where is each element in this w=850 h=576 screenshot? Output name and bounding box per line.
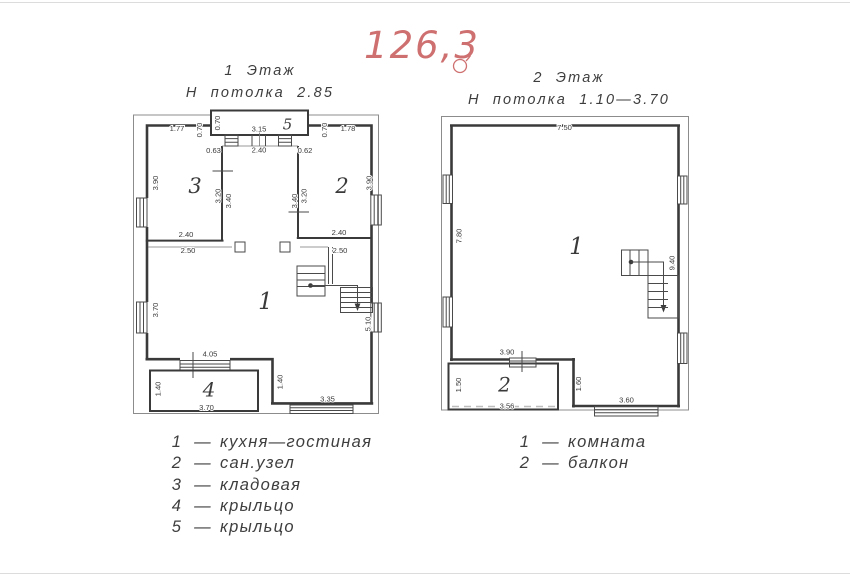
legend-num: 1 xyxy=(516,433,534,452)
room-label-porch: 4 xyxy=(202,378,216,402)
dim-label: 5.10 xyxy=(364,317,373,332)
dim-label: 7.50 xyxy=(557,123,572,132)
room-label-balcony: 2 xyxy=(497,373,511,397)
dim-label: 9.40 xyxy=(668,256,677,271)
legend-label: кухня—гостиная xyxy=(220,433,372,452)
floor1-entrance-steps xyxy=(180,361,230,371)
legend-dash: — xyxy=(534,454,568,473)
floorplan-page: 126,3 1 Этаж Н потолка 2.85 2 Этаж Н пот… xyxy=(0,0,850,576)
floor1-plan: 1.77 0.70 0.70 3.15 0.70 1.78 0.63 2.40 … xyxy=(134,111,382,414)
legend-label: крыльцо xyxy=(220,518,295,537)
floorplan-drawing: 1.77 0.70 0.70 3.15 0.70 1.78 0.63 2.40 … xyxy=(0,0,850,576)
dim-label: 2.40 xyxy=(332,228,347,237)
legend-label: кладовая xyxy=(220,476,301,495)
room-label-bath: 2 xyxy=(334,174,348,198)
floor2-walls xyxy=(450,124,680,407)
legend-item: 1 — комната xyxy=(516,433,646,454)
dim-label: 3.70 xyxy=(151,303,160,318)
dim-label: 0.62 xyxy=(298,146,313,155)
legend-num: 5 xyxy=(168,518,186,537)
floor2-plan: 7.50 7.80 9.40 3.90 1.50 3.56 1.60 3.60 … xyxy=(442,117,689,417)
dim-label: 3.70 xyxy=(199,403,214,412)
room-label-living: 1 xyxy=(258,289,273,315)
legend-item: 4 — крыльцо xyxy=(168,497,372,518)
dim-label: 3.90 xyxy=(151,176,160,191)
legend-num: 2 xyxy=(516,454,534,473)
legend-num: 1 xyxy=(168,433,186,452)
legend-dash: — xyxy=(186,518,220,537)
room-label-stoop5: 5 xyxy=(283,116,293,134)
legend-num: 4 xyxy=(168,497,186,516)
dim-label: 3.60 xyxy=(619,396,634,405)
dim-label: 1.50 xyxy=(454,378,463,393)
floor1-legend: 1 — кухня—гостиная 2 — сан.узел 3 — клад… xyxy=(168,433,372,539)
floor2-outer-boundary xyxy=(442,117,689,411)
legend-num: 3 xyxy=(168,476,186,495)
dim-label: 3.90 xyxy=(500,348,515,357)
legend-item: 2 — балкон xyxy=(516,454,646,475)
legend-num: 2 xyxy=(168,454,186,473)
dim-label: 3.35 xyxy=(320,395,335,404)
legend-item: 3 — кладовая xyxy=(168,476,372,497)
dim-label: 0.70 xyxy=(195,123,204,138)
dim-label: 1.40 xyxy=(154,382,163,397)
dim-label: 3.15 xyxy=(252,125,267,134)
dim-label: 0.70 xyxy=(213,116,222,131)
legend-item: 2 — сан.узел xyxy=(168,454,372,475)
legend-item: 5 — крыльцо xyxy=(168,518,372,539)
legend-label: комната xyxy=(568,433,646,452)
legend-dash: — xyxy=(186,476,220,495)
floor2-windows xyxy=(443,175,687,364)
floor1-columns xyxy=(235,242,290,252)
dim-label: 3.40 xyxy=(290,194,299,209)
dim-label: 3.90 xyxy=(365,176,374,191)
floor1-staircase xyxy=(297,247,373,313)
room-label-room: 1 xyxy=(569,234,584,260)
dim-label: 2.50 xyxy=(333,246,348,255)
floor1-exterior-steps xyxy=(290,405,353,414)
dim-label: 2.40 xyxy=(179,230,194,239)
room-label-storage: 3 xyxy=(188,174,201,198)
legend-item: 1 — кухня—гостиная xyxy=(168,433,372,454)
legend-label: сан.узел xyxy=(220,454,295,473)
legend-dash: — xyxy=(186,433,220,452)
legend-dash: — xyxy=(186,454,220,473)
dim-label: 3.20 xyxy=(300,189,309,204)
dim-label: 0.63 xyxy=(206,146,221,155)
dim-label: 1.40 xyxy=(276,375,285,390)
legend-dash: — xyxy=(186,497,220,516)
legend-label: балкон xyxy=(568,454,629,473)
floor2-exterior-steps xyxy=(595,407,659,417)
dim-label: 3.20 xyxy=(214,189,223,204)
legend-dash: — xyxy=(534,433,568,452)
flourish-mark xyxy=(454,56,471,73)
floor2-legend: 1 — комната 2 — балкон xyxy=(516,433,646,476)
dim-label: 3.40 xyxy=(224,194,233,209)
dim-label: 1.78 xyxy=(341,124,356,133)
dim-label: 0.70 xyxy=(320,123,329,138)
dim-label: 1.60 xyxy=(574,377,583,392)
floor1-outer-boundary xyxy=(134,115,379,414)
dim-label: 1.77 xyxy=(170,124,185,133)
legend-label: крыльцо xyxy=(220,497,295,516)
dim-label: 2.50 xyxy=(181,246,196,255)
dim-label: 3.56 xyxy=(500,402,515,411)
dim-label: 7.80 xyxy=(455,229,464,244)
dim-label: 2.40 xyxy=(252,146,267,155)
dim-label: 4.05 xyxy=(203,350,218,359)
